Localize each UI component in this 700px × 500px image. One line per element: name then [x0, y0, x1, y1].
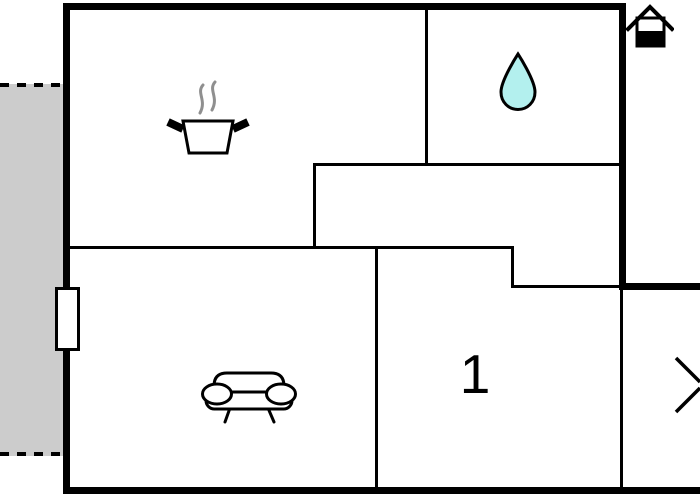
chevron-right-icon [670, 350, 700, 416]
floor-plan-canvas: 1 [0, 0, 700, 500]
house-icon [626, 2, 674, 52]
water-drop-icon [495, 51, 541, 113]
outer-wall-right-extension [619, 283, 700, 290]
living-bedroom-wall [375, 246, 378, 487]
outer-wall-top [63, 3, 626, 10]
party-wall-right [620, 290, 623, 487]
terrace-dashed-border-top [0, 83, 64, 87]
outer-wall-bottom [63, 487, 700, 494]
terrace-door [55, 287, 80, 351]
hall-top-wall [315, 163, 619, 166]
terrace-dashed-border-bottom [0, 452, 64, 456]
sofa-icon [197, 363, 301, 427]
kitchen-hall-wall [313, 163, 316, 246]
terrace-area [0, 84, 63, 456]
outer-wall-right [619, 3, 626, 290]
kitchen-bathroom-wall [425, 10, 428, 163]
cooking-pot-icon [162, 78, 254, 158]
step-wall-vertical [511, 246, 514, 285]
middle-wall [70, 246, 514, 249]
step-wall-horizontal [511, 285, 619, 288]
outer-wall-left [63, 3, 70, 494]
bedroom-1-label: 1 [445, 346, 505, 404]
